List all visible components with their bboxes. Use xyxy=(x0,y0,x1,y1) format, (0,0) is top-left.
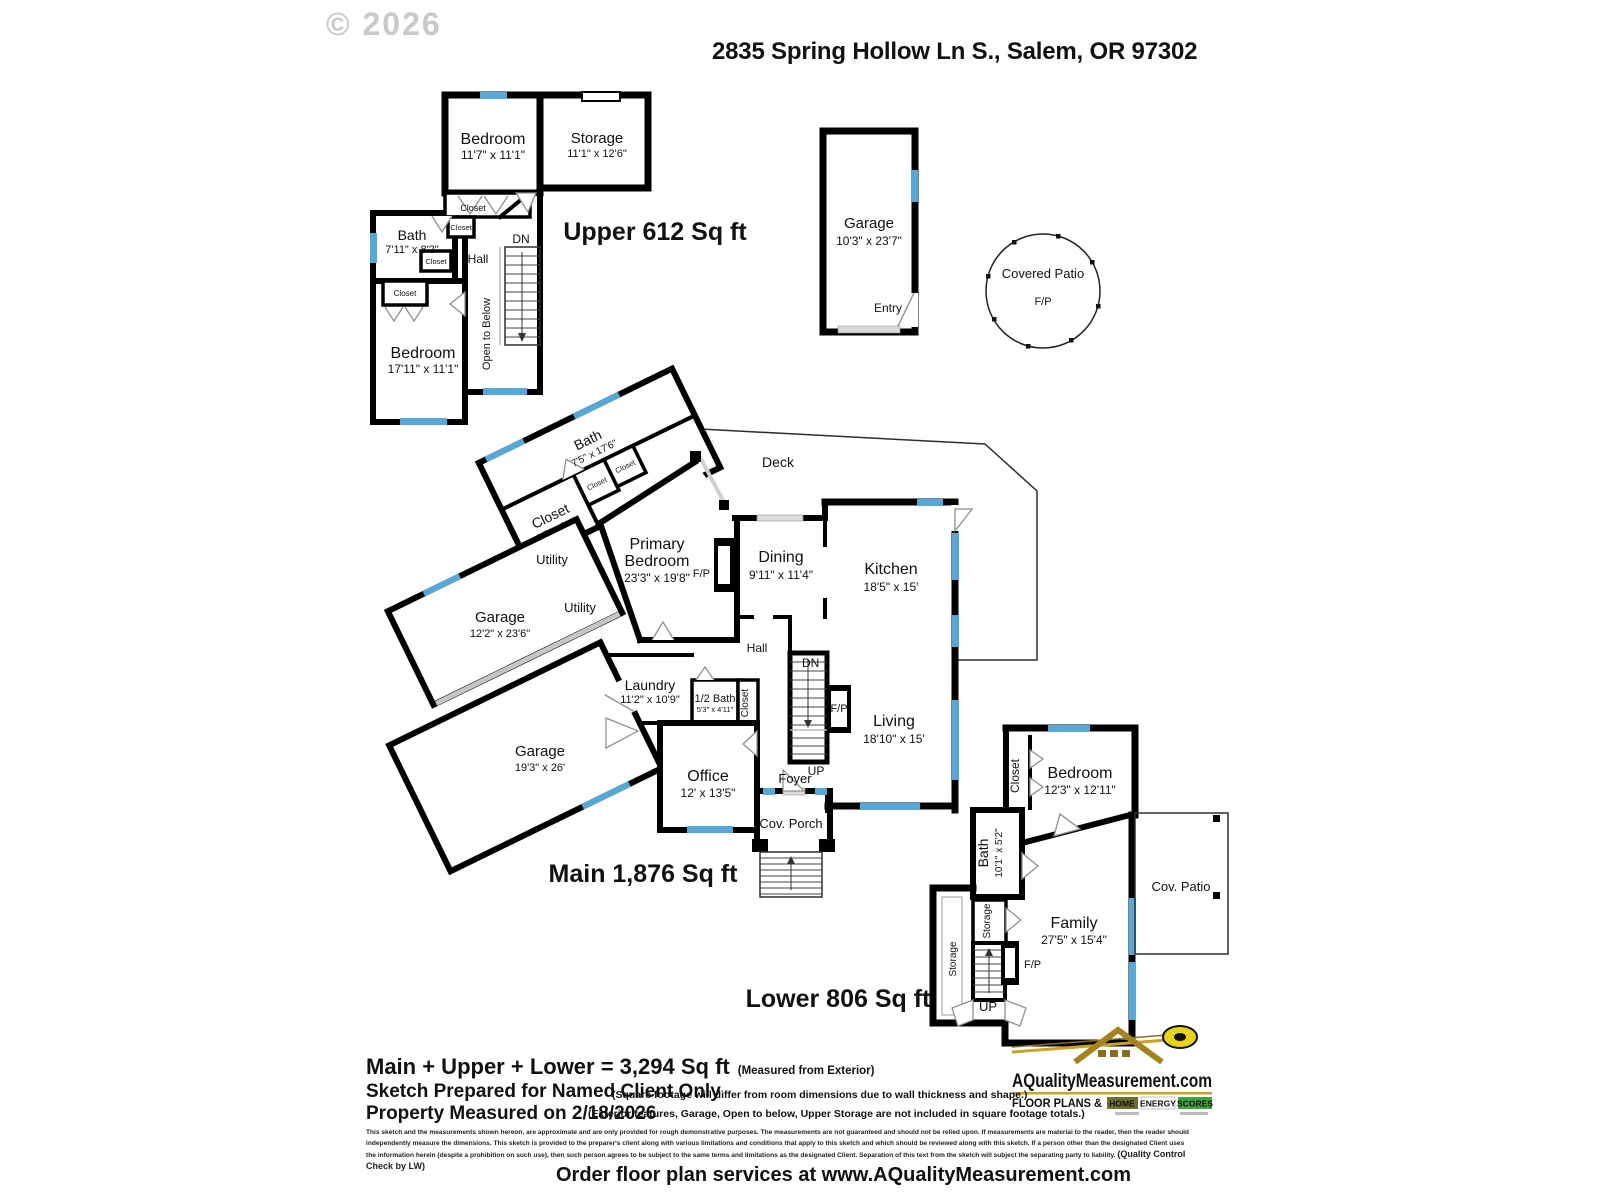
window xyxy=(952,533,959,580)
logo-badge-energy: ENERGY xyxy=(1140,1099,1176,1109)
closet-label: Closet xyxy=(1008,758,1022,793)
fp-label: F/P xyxy=(830,703,847,715)
main-floor-plan: Bath 7'5" x 17'6" Closet 9'5" x 9'4" Clo… xyxy=(387,366,1037,897)
fp-label: F/P xyxy=(1024,959,1041,971)
window xyxy=(687,826,733,833)
entry-label: Entry xyxy=(874,301,902,315)
room-dims: 11'2" x 10'9" xyxy=(620,694,680,706)
patio-label: Covered Patio xyxy=(1002,266,1084,281)
closet-label: Closet xyxy=(425,257,447,266)
room-dims: 17'11" x 11'1" xyxy=(388,362,459,376)
room-dims: 10'3" x 23'7" xyxy=(836,234,902,248)
utility-label: Utility xyxy=(536,552,568,567)
closet-label: Closet xyxy=(460,203,486,213)
logo-badge-scores: SCORES xyxy=(1177,1099,1213,1109)
upper-floor-area-label: Upper 612 Sq ft xyxy=(563,218,747,246)
room-label: Garage xyxy=(475,609,525,626)
fp-label: F/P xyxy=(693,568,710,580)
room-label: Office xyxy=(687,768,729,785)
room-dims: 9'11" x 11'4" xyxy=(749,568,813,582)
room-label: Bath xyxy=(975,839,991,868)
room-label: Storage xyxy=(571,130,624,147)
open-to-below-label: Open to Below xyxy=(481,298,493,370)
main-floor-area-label: Main 1,876 Sq ft xyxy=(549,860,739,888)
window xyxy=(400,418,447,425)
window xyxy=(370,233,377,263)
exclusions-note: (Exterior features, Garage, Open to belo… xyxy=(588,1108,1085,1120)
measured-from-exterior-note: (Measured from Exterior) xyxy=(738,1065,875,1077)
disclaimer-text: This sketch and the measurements shown h… xyxy=(366,1129,1189,1159)
cov-patio-label: Cov. Patio xyxy=(1151,879,1210,894)
room-label: Dining xyxy=(758,549,803,566)
hall-label: Hall xyxy=(468,252,489,266)
floor-plan-canvas: Bedroom 11'7" x 11'1" Storage 11'1" x 12… xyxy=(0,0,1600,1200)
window xyxy=(1129,962,1136,1020)
room-dims: 11'7" x 11'1" xyxy=(461,148,525,162)
dn-label: DN xyxy=(512,232,529,246)
window xyxy=(860,803,920,810)
room-dims: 23'3" x 19'8" xyxy=(624,571,690,585)
room-label: Bath xyxy=(398,227,427,243)
room-dims: 11'1" x 12'6" xyxy=(567,148,627,160)
covered-patio-plan: Covered Patio F/P xyxy=(986,234,1101,349)
deck-label: Deck xyxy=(762,454,795,470)
window xyxy=(815,788,827,795)
room-dims: 12'2" x 23'6" xyxy=(470,628,530,640)
garage-plan: Garage 10'3" x 23'7" Entry xyxy=(823,131,918,333)
logo-site-text: AQualityMeasurement.com xyxy=(1012,1071,1212,1092)
room-label: Bedroom xyxy=(625,553,690,570)
room-label: Bedroom xyxy=(391,345,456,362)
sqft-differ-note: (Square footage will differ from room di… xyxy=(612,1089,1027,1101)
room-label: Family xyxy=(1050,915,1097,932)
lower-floor-area-label: Lower 806 Sq ft xyxy=(746,985,931,1013)
up-label: UP xyxy=(979,999,997,1014)
room-dims: 18'5" x 15' xyxy=(864,580,919,594)
room-dims: 18'10" x 15' xyxy=(863,732,925,746)
cov-porch-label: Cov. Porch xyxy=(759,816,822,831)
dn-label: DN xyxy=(802,656,819,670)
room-dims: 5'3" x 4'11" xyxy=(697,705,734,714)
room-dims: 10'1" x 5'2" xyxy=(994,828,1005,878)
room-label: Garage xyxy=(844,215,894,232)
closet-label: Closet xyxy=(394,289,417,298)
room-label: 1/2 Bath xyxy=(695,693,736,705)
room-dims: 12' x 13'5" xyxy=(681,786,736,800)
room-label: Bedroom xyxy=(461,131,526,148)
closet-label: Closet xyxy=(450,223,472,232)
window xyxy=(952,615,959,647)
room-label: Laundry xyxy=(625,677,676,693)
room-label: Bedroom xyxy=(1048,765,1113,782)
storage-label: Storage xyxy=(982,903,993,938)
window xyxy=(911,170,918,202)
logo-badge-home: HOME xyxy=(1109,1099,1135,1109)
room-dims: 27'5" x 15'4" xyxy=(1041,933,1107,947)
total-sqft-text: Main + Upper + Lower = 3,294 Sq ft xyxy=(366,1054,730,1079)
window xyxy=(480,92,507,99)
window xyxy=(917,499,943,506)
window xyxy=(483,388,527,395)
porch-stairs xyxy=(760,852,822,897)
floor-plan-page: © 2026 2835 Spring Hollow Ln S., Salem, … xyxy=(0,0,1600,1200)
window xyxy=(763,788,775,795)
room-label: Living xyxy=(873,713,915,730)
closet-label: Closet xyxy=(740,689,751,718)
upper-floor-plan: Bedroom 11'7" x 11'1" Storage 11'1" x 12… xyxy=(370,92,747,425)
window xyxy=(952,700,959,780)
storage-label: Storage xyxy=(948,941,959,976)
room-dims: 7'11" x 8'2" xyxy=(385,244,438,256)
hall-label: Hall xyxy=(747,641,768,655)
room-dims: 12'3" x 12'11" xyxy=(1044,783,1116,797)
utility-label: Utility xyxy=(564,600,596,615)
foyer-label: Foyer xyxy=(778,771,812,786)
room-dims: 19'3" x 26' xyxy=(515,762,565,774)
room-label: Primary xyxy=(629,536,684,553)
room-label: Kitchen xyxy=(864,561,917,578)
order-services-line: Order floor plan services at www.AQualit… xyxy=(556,1164,1131,1187)
fp-label: F/P xyxy=(1034,296,1051,308)
window xyxy=(1048,725,1090,732)
total-sqft-line: Main + Upper + Lower = 3,294 Sq ft(Measu… xyxy=(366,1054,875,1080)
room-label: Garage xyxy=(515,743,565,760)
